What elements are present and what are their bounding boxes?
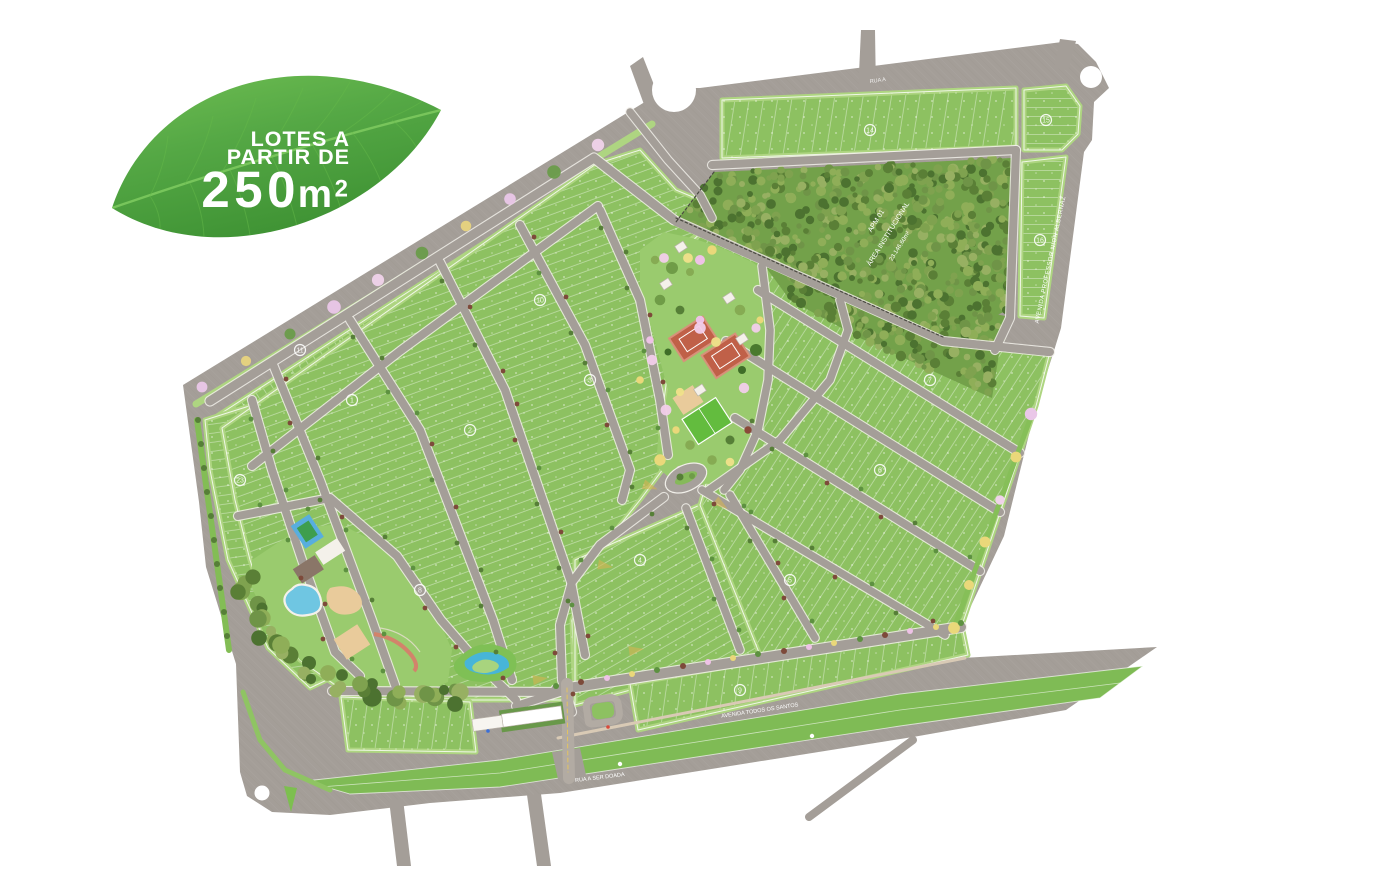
svg-text:10: 10 (536, 298, 544, 305)
svg-text:9: 9 (738, 688, 742, 695)
svg-text:m: m (298, 173, 332, 216)
svg-text:14: 14 (866, 128, 874, 135)
svg-text:2: 2 (468, 428, 472, 435)
svg-text:250: 250 (201, 161, 300, 218)
svg-text:23: 23 (236, 478, 244, 485)
svg-text:3: 3 (588, 378, 592, 385)
svg-text:16: 16 (1036, 238, 1044, 245)
svg-text:4: 4 (638, 558, 642, 565)
svg-text:2: 2 (335, 176, 348, 203)
svg-text:6: 6 (878, 468, 882, 475)
svg-text:5: 5 (788, 578, 792, 585)
svg-text:1: 1 (350, 398, 354, 405)
svg-text:7: 7 (928, 378, 932, 385)
svg-text:8: 8 (418, 588, 422, 595)
svg-text:15: 15 (1042, 118, 1050, 125)
svg-text:11: 11 (296, 348, 303, 355)
